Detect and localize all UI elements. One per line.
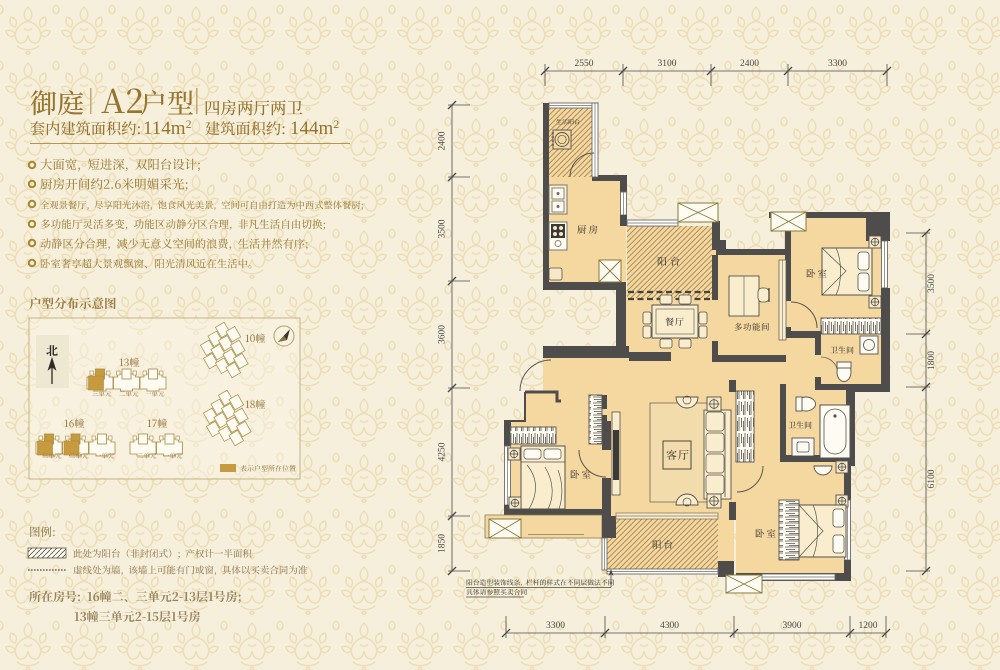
svg-text:3300: 3300 — [546, 621, 565, 631]
svg-text:3300: 3300 — [828, 59, 847, 69]
svg-text:6100: 6100 — [927, 469, 937, 488]
svg-text:2550: 2550 — [575, 59, 594, 69]
svg-text:1850: 1850 — [438, 534, 448, 553]
svg-text:3100: 3100 — [658, 59, 677, 69]
svg-text:3500: 3500 — [927, 274, 937, 293]
svg-text:114m2: 114m2 — [143, 117, 192, 139]
svg-text:4250: 4250 — [438, 442, 448, 461]
svg-text:3600: 3600 — [438, 325, 448, 344]
svg-text:4300: 4300 — [660, 621, 679, 631]
svg-text:1200: 1200 — [859, 621, 878, 631]
svg-text:144m2: 144m2 — [290, 117, 339, 139]
svg-text:3900: 3900 — [783, 621, 802, 631]
svg-text:3500: 3500 — [438, 219, 448, 238]
svg-text:2400: 2400 — [438, 131, 448, 150]
svg-text:2400: 2400 — [740, 59, 759, 69]
svg-text:1800: 1800 — [927, 351, 937, 370]
